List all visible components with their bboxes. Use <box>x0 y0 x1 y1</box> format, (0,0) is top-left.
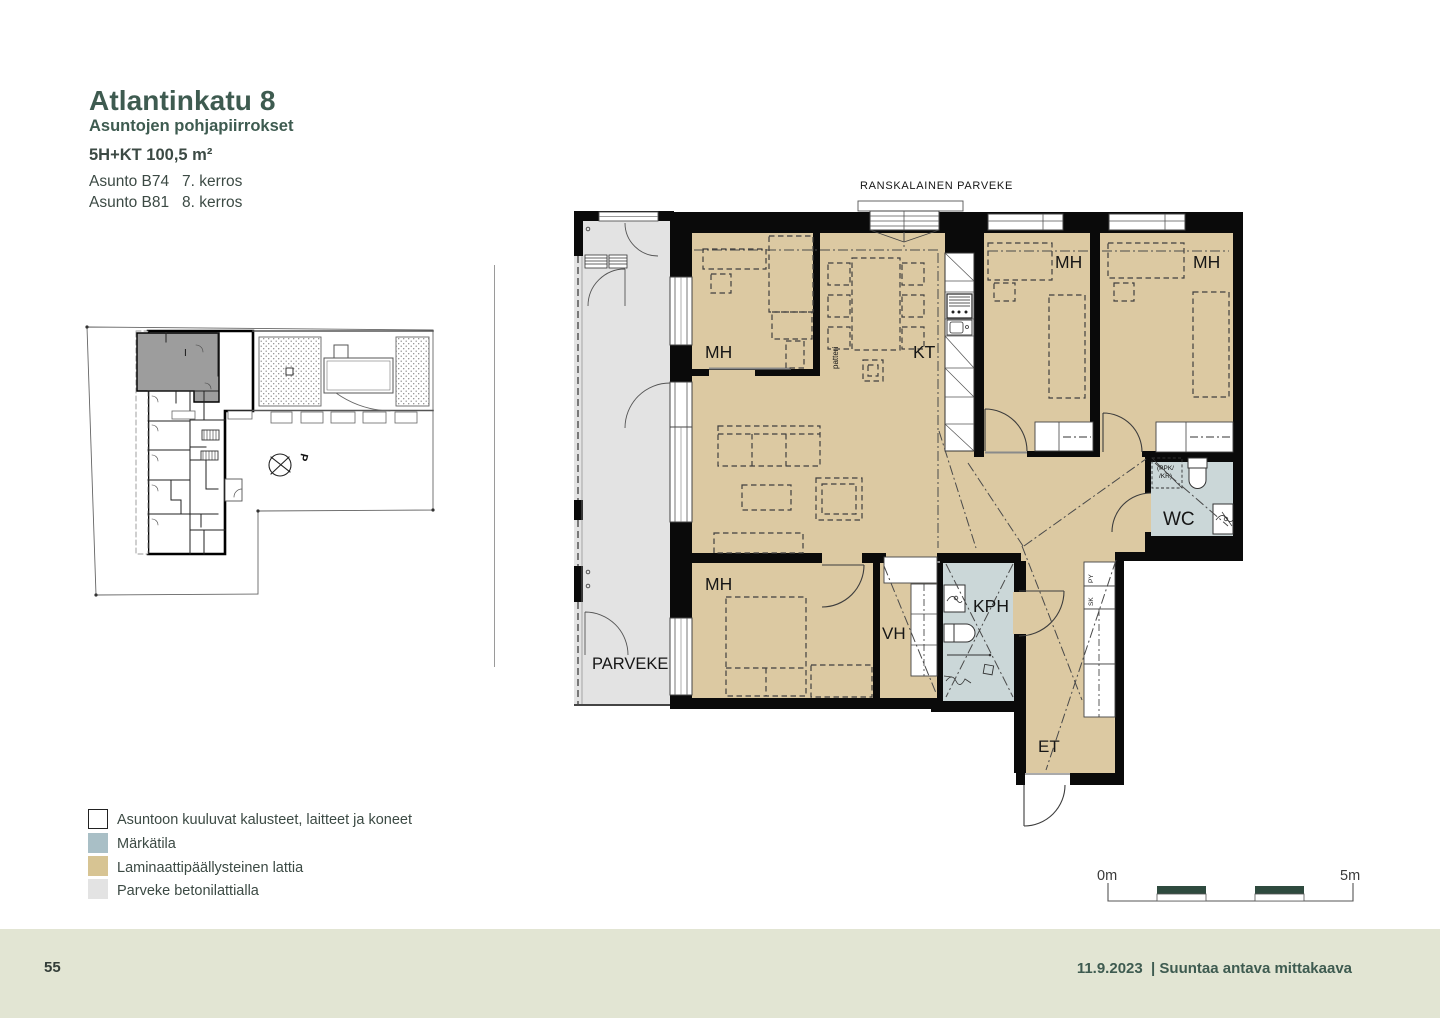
svg-text:patteri: patteri <box>831 347 840 369</box>
svg-text:MH: MH <box>705 574 732 594</box>
svg-text:I: I <box>184 348 187 359</box>
svg-text:0m: 0m <box>1097 868 1117 884</box>
svg-text:PY: PY <box>1088 574 1095 583</box>
svg-text:5m: 5m <box>1340 868 1360 884</box>
svg-text:MH: MH <box>705 342 732 362</box>
svg-text:SK: SK <box>1088 597 1095 606</box>
svg-text:RANSKALAINEN PARVEKE: RANSKALAINEN PARVEKE <box>860 180 1013 192</box>
svg-text:P: P <box>296 452 309 462</box>
svg-text:(PPK/: (PPK/ <box>1157 465 1174 472</box>
svg-text:KPH: KPH <box>973 596 1009 616</box>
svg-text:VH: VH <box>882 624 906 643</box>
svg-text:ET: ET <box>1038 737 1060 756</box>
svg-text:MH: MH <box>1055 252 1082 272</box>
svg-text:KT: KT <box>913 342 936 362</box>
svg-text:MH: MH <box>1193 252 1220 272</box>
svg-text:WC: WC <box>1163 509 1195 530</box>
svg-text:PARVEKE: PARVEKE <box>592 655 668 673</box>
